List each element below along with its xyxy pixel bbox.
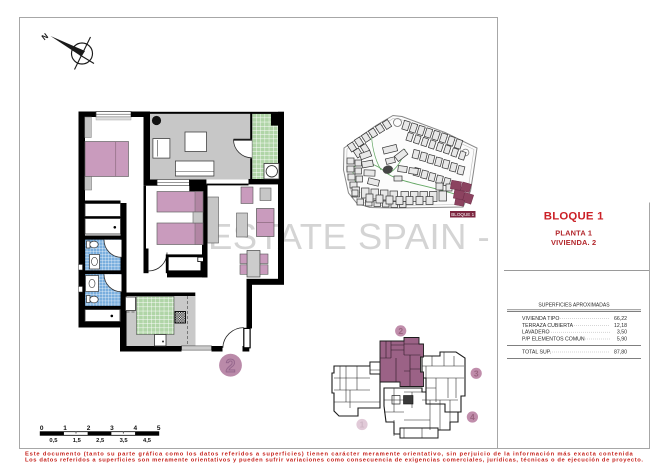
svg-text:3,50: 3,50 <box>617 330 627 336</box>
svg-text:2: 2 <box>398 326 403 336</box>
svg-text:1,5: 1,5 <box>73 438 82 444</box>
svg-text:BLOQUE 1: BLOQUE 1 <box>544 211 604 223</box>
svg-text:2: 2 <box>225 356 235 376</box>
svg-text:BLOQUE 1: BLOQUE 1 <box>451 212 474 217</box>
svg-text:66,22: 66,22 <box>614 316 627 322</box>
svg-text:3: 3 <box>110 425 114 432</box>
svg-text:PLANTA 1: PLANTA 1 <box>555 229 592 238</box>
svg-text:0,5: 0,5 <box>49 438 58 444</box>
svg-text:Los datos referidos a superfic: Los datos referidos a superficies son me… <box>25 458 644 464</box>
svg-text:LAVADERO: LAVADERO <box>522 330 549 336</box>
svg-text:TOTAL SUP.: TOTAL SUP. <box>522 349 551 355</box>
svg-text:4: 4 <box>470 412 475 422</box>
svg-text:2: 2 <box>87 425 91 432</box>
svg-text:12,18: 12,18 <box>614 323 627 329</box>
svg-text:1: 1 <box>63 425 67 432</box>
svg-text:P/P ELEMENTOS COMUN: P/P ELEMENTOS COMUN <box>522 336 585 342</box>
svg-text:TERRAZA CUBIERTA: TERRAZA CUBIERTA <box>522 323 574 329</box>
svg-text:4: 4 <box>133 425 137 432</box>
svg-text:VIVIENDA TIPO: VIVIENDA TIPO <box>522 316 559 322</box>
svg-text:SUPERFICIES APROXIMADAS: SUPERFICIES APROXIMADAS <box>538 303 610 309</box>
svg-text:87,80: 87,80 <box>614 349 627 355</box>
svg-text:4,5: 4,5 <box>143 438 152 444</box>
svg-text:5: 5 <box>157 425 161 432</box>
svg-text:3,5: 3,5 <box>120 438 129 444</box>
svg-text:0: 0 <box>40 425 44 432</box>
svg-text:3: 3 <box>474 368 479 378</box>
svg-text:1: 1 <box>360 420 365 430</box>
svg-text:2,5: 2,5 <box>96 438 105 444</box>
svg-text:VIVIENDA. 2: VIVIENDA. 2 <box>551 238 596 247</box>
svg-text:5,90: 5,90 <box>617 336 627 342</box>
